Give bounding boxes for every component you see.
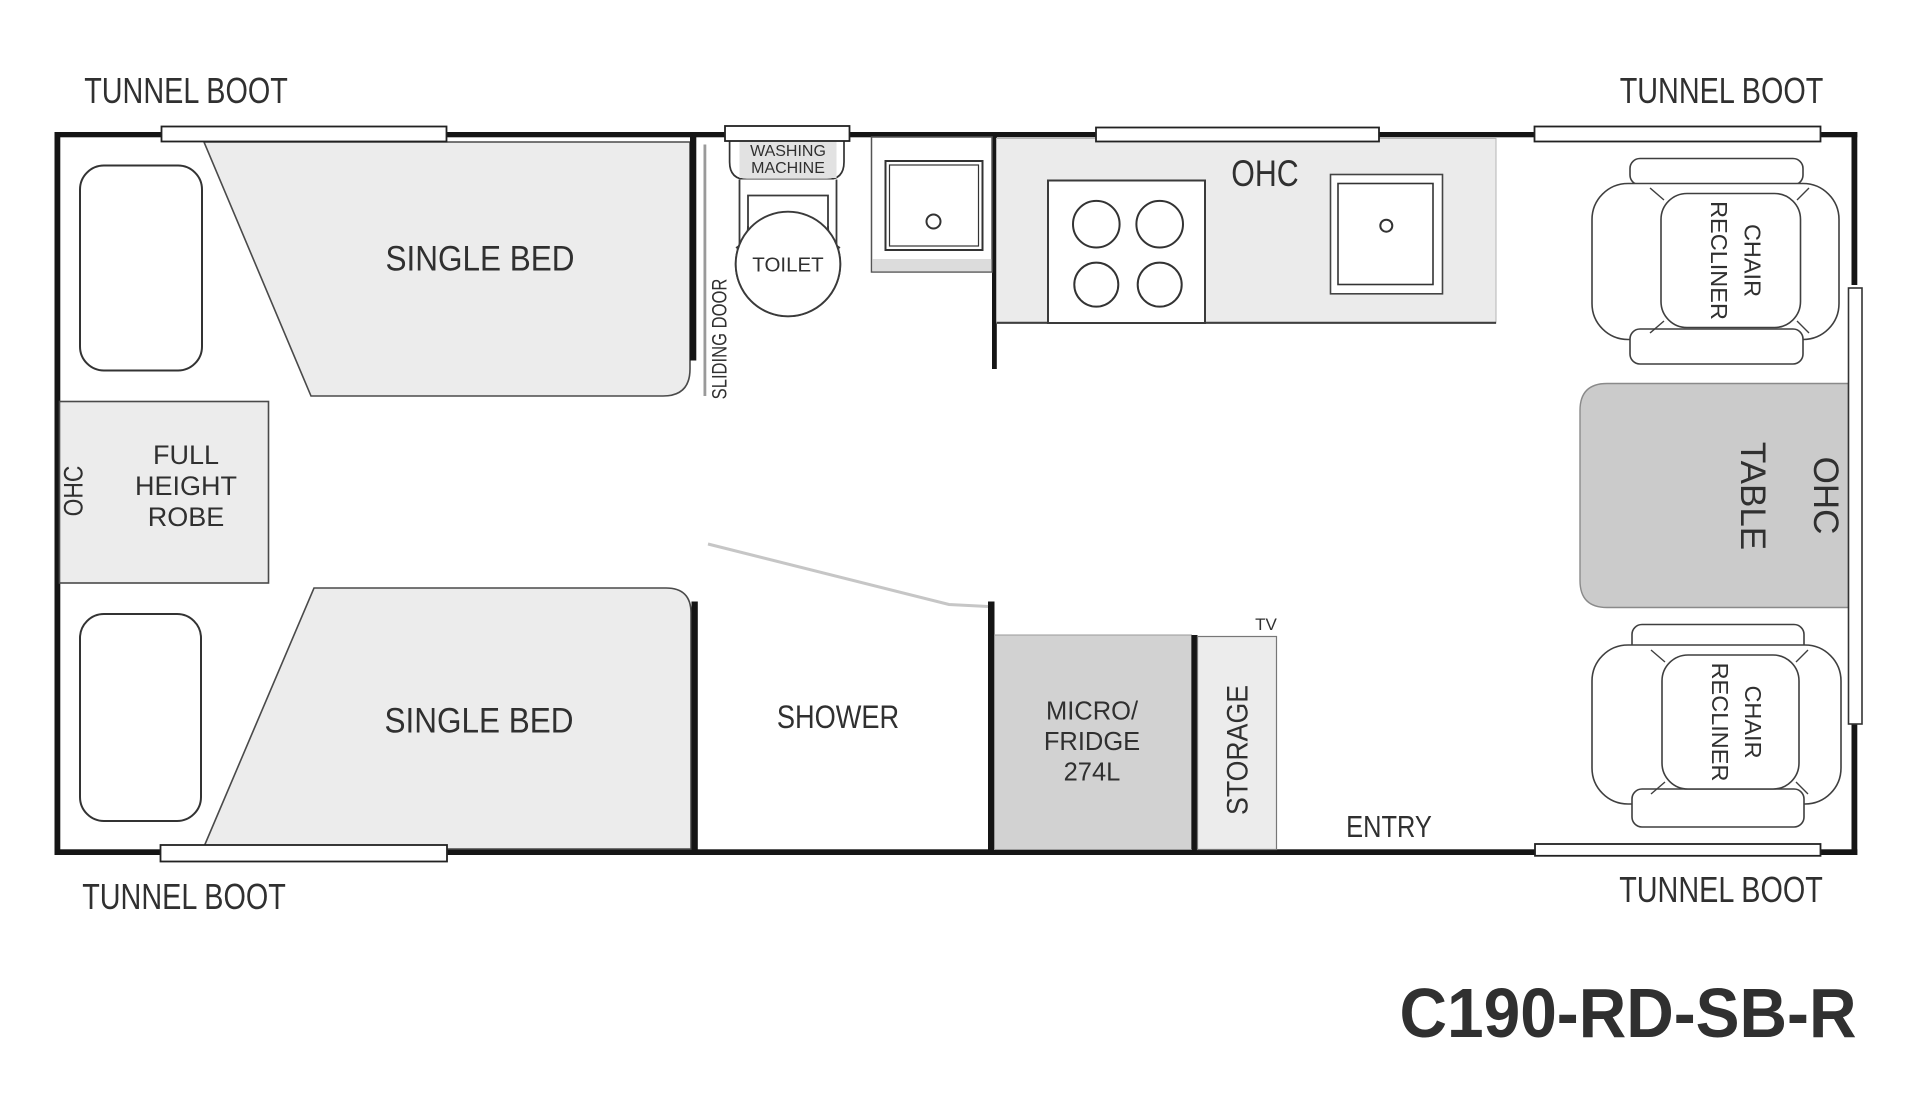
svg-text:ENTRY: ENTRY: [1346, 810, 1432, 845]
svg-text:WASHING: WASHING: [750, 143, 826, 160]
svg-text:TOILET: TOILET: [752, 254, 824, 277]
svg-text:TUNNEL BOOT: TUNNEL BOOT: [82, 876, 286, 917]
svg-text:TUNNEL BOOT: TUNNEL BOOT: [84, 70, 288, 111]
svg-text:ROBE: ROBE: [148, 502, 225, 532]
svg-text:SINGLE BED: SINGLE BED: [386, 240, 575, 279]
svg-text:FRIDGE: FRIDGE: [1044, 728, 1140, 756]
svg-text:RECLINER: RECLINER: [1707, 663, 1733, 782]
svg-text:STORAGE: STORAGE: [1221, 685, 1255, 815]
svg-text:HEIGHT: HEIGHT: [135, 471, 237, 501]
svg-text:TV: TV: [1255, 615, 1277, 634]
svg-text:TUNNEL BOOT: TUNNEL BOOT: [1619, 869, 1823, 910]
svg-text:SLIDING DOOR: SLIDING DOOR: [709, 279, 732, 400]
svg-text:MICRO/: MICRO/: [1046, 698, 1139, 726]
svg-text:TABLE: TABLE: [1733, 442, 1772, 550]
svg-text:OHC: OHC: [60, 466, 89, 517]
svg-text:MACHINE: MACHINE: [751, 160, 825, 177]
svg-text:CHAIR: CHAIR: [1740, 685, 1766, 758]
svg-text:RECLINER: RECLINER: [1706, 201, 1732, 320]
svg-text:C190-RD-SB-R: C190-RD-SB-R: [1400, 975, 1857, 1052]
svg-text:OHC: OHC: [1231, 153, 1298, 195]
svg-text:OHC: OHC: [1806, 457, 1845, 535]
svg-text:274L: 274L: [1064, 759, 1121, 787]
svg-text:CHAIR: CHAIR: [1740, 224, 1766, 297]
svg-text:SHOWER: SHOWER: [777, 700, 899, 736]
svg-text:SINGLE BED: SINGLE BED: [385, 702, 574, 741]
svg-text:FULL: FULL: [153, 440, 219, 470]
svg-text:TUNNEL BOOT: TUNNEL BOOT: [1620, 70, 1824, 111]
